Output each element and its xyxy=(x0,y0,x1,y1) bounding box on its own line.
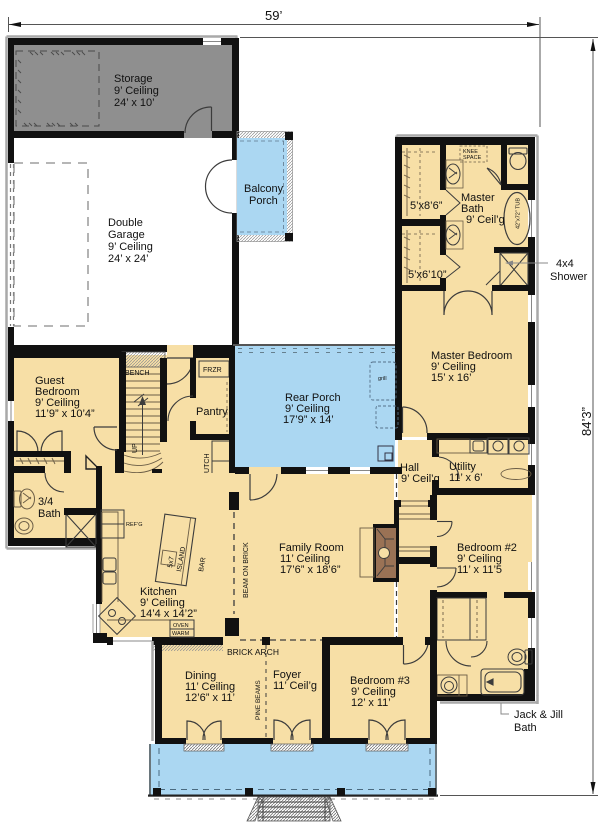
svg-text:24’ x 10’: 24’ x 10’ xyxy=(114,97,155,109)
svg-text:9’ Ceiling: 9’ Ceiling xyxy=(108,241,153,253)
svg-text:Pantry: Pantry xyxy=(196,406,228,418)
svg-text:SPACE: SPACE xyxy=(463,155,482,161)
svg-text:Double: Double xyxy=(108,217,143,229)
svg-text:REF’G: REF’G xyxy=(126,522,143,528)
svg-text:UP: UP xyxy=(132,443,139,453)
svg-text:4x4: 4x4 xyxy=(556,258,574,270)
svg-text:84’3”: 84’3” xyxy=(579,407,594,436)
svg-text:5’x6’10”: 5’x6’10” xyxy=(408,269,447,281)
svg-text:17’6” x 18’6”: 17’6” x 18’6” xyxy=(280,564,341,576)
svg-text:Balcony: Balcony xyxy=(244,183,284,195)
svg-text:15’ x 16’: 15’ x 16’ xyxy=(431,372,472,384)
svg-text:5’x8’6”: 5’x8’6” xyxy=(410,200,443,212)
svg-text:9’ Ceiling: 9’ Ceiling xyxy=(114,85,159,97)
svg-text:Bath: Bath xyxy=(38,508,61,520)
svg-text:BENCH: BENCH xyxy=(125,370,150,377)
svg-text:17’9” x 14’: 17’9” x 14’ xyxy=(283,414,334,426)
svg-text:Shower: Shower xyxy=(550,271,588,283)
svg-text:Bath: Bath xyxy=(514,722,537,734)
svg-text:OVEN: OVEN xyxy=(173,623,189,629)
svg-text:9’ Ceil’g: 9’ Ceil’g xyxy=(466,214,505,226)
svg-text:24’ x 24’: 24’ x 24’ xyxy=(108,253,149,265)
svg-text:14’4 x 14’2”: 14’4 x 14’2” xyxy=(140,608,197,620)
svg-text:WARM: WARM xyxy=(172,631,190,637)
svg-text:Jack & Jill: Jack & Jill xyxy=(514,709,563,721)
svg-text:11’ x 11’5: 11’ x 11’5 xyxy=(457,564,502,576)
svg-text:11’ x 6’: 11’ x 6’ xyxy=(449,472,483,484)
svg-text:11’ Ceil’g: 11’ Ceil’g xyxy=(273,680,317,692)
svg-text:59’: 59’ xyxy=(265,8,282,23)
svg-text:grill: grill xyxy=(378,376,387,382)
svg-text:FRZR: FRZR xyxy=(203,367,222,374)
svg-text:BEAM ON BRICK: BEAM ON BRICK xyxy=(243,542,250,598)
svg-text:3/4: 3/4 xyxy=(38,496,53,508)
svg-text:12’6” x 11’: 12’6” x 11’ xyxy=(185,692,235,704)
svg-text:Porch: Porch xyxy=(249,195,278,207)
svg-text:9’ Ceil’g: 9’ Ceil’g xyxy=(401,473,440,485)
svg-text:12’ x 11’: 12’ x 11’ xyxy=(351,697,391,709)
svg-text:BRICK ARCH: BRICK ARCH xyxy=(227,647,279,657)
svg-text:42”x72” TUB: 42”x72” TUB xyxy=(516,198,522,229)
svg-text:11’9” x 10’4”: 11’9” x 10’4” xyxy=(35,408,95,420)
svg-text:PINE BEAMS: PINE BEAMS xyxy=(255,680,262,720)
svg-text:Storage: Storage xyxy=(114,73,153,85)
svg-text:Garage: Garage xyxy=(108,229,145,241)
